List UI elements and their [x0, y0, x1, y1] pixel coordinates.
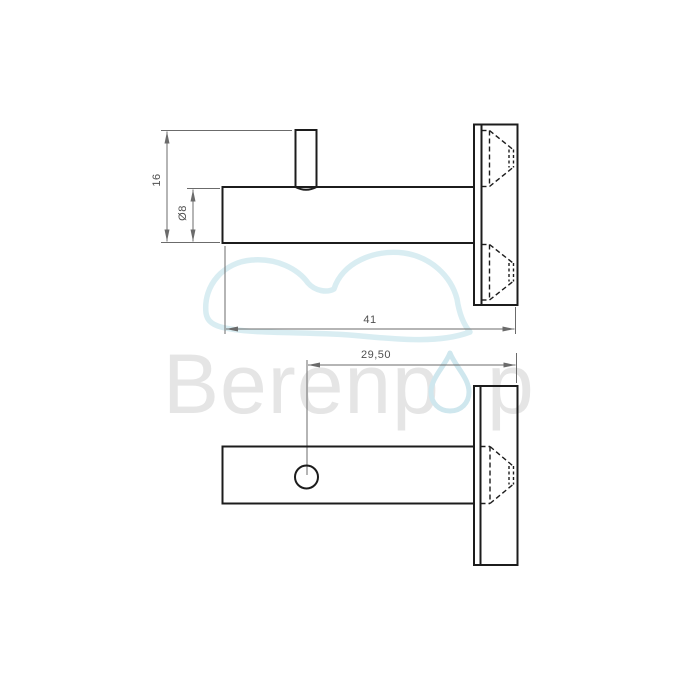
hook-bar-outline	[223, 187, 475, 243]
drawing-svg: Berenp p	[0, 0, 685, 685]
logo-cloud-icon	[206, 252, 470, 339]
watermark-brand-text-left: Berenp	[163, 337, 440, 431]
hidden-line	[490, 447, 513, 467]
hook-bar-plan-outline	[223, 447, 475, 504]
hidden-line	[490, 168, 514, 187]
screw-hole-hidden-plan	[481, 447, 514, 504]
dimension-label-diameter: Ø8	[177, 205, 189, 221]
screw-hole-hidden-top	[482, 131, 514, 187]
screw-hole-hidden-bottom	[482, 245, 514, 301]
hidden-line	[490, 282, 514, 301]
watermark-brand-text-right: p	[487, 337, 535, 431]
dimension-label-height: 16	[151, 173, 163, 186]
dimension-label-length: 41	[363, 314, 376, 326]
dimension-label-hole-offset: 29,50	[361, 349, 391, 361]
hidden-line	[490, 245, 514, 264]
side-view	[223, 125, 518, 306]
hidden-line	[490, 131, 514, 150]
watermark: Berenp p	[163, 252, 535, 431]
hook-peg-outline	[296, 130, 317, 187]
technical-drawing-page: Berenp p	[0, 0, 685, 685]
hidden-line	[490, 485, 513, 504]
